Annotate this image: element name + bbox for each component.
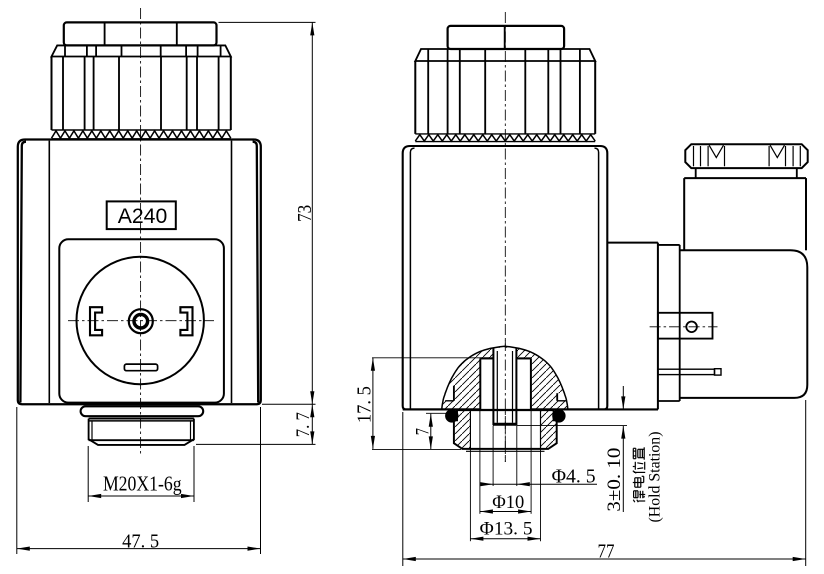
svg-text:3±0. 10: 3±0. 10 [604,448,625,512]
svg-text:Φ10: Φ10 [492,493,524,513]
svg-text:7. 7: 7. 7 [293,412,314,437]
svg-text:Φ4. 5: Φ4. 5 [552,466,596,488]
svg-text:47. 5: 47. 5 [122,530,159,552]
svg-text:77: 77 [598,540,615,562]
svg-text:Φ13. 5: Φ13. 5 [480,519,533,539]
svg-text:17. 5: 17. 5 [353,386,375,423]
svg-text:7: 7 [412,428,433,435]
svg-text:73: 73 [294,205,316,222]
svg-text:M20X1-6g: M20X1-6g [103,471,182,495]
svg-text:A240: A240 [118,205,168,228]
svg-text:(Hold Station): (Hold Station) [647,432,664,523]
